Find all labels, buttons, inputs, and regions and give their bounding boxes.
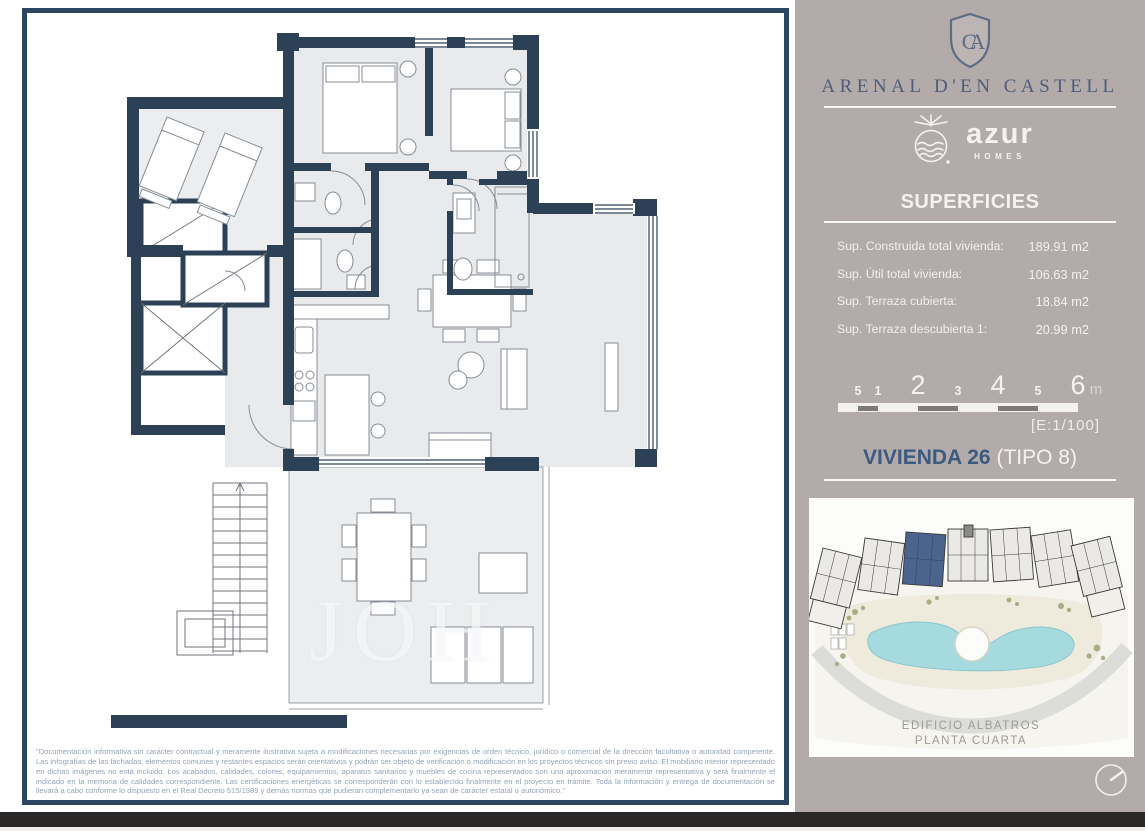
row-label: Sup. Terraza descubierta 1:: [837, 322, 987, 336]
scale-label: 4: [990, 370, 1005, 401]
azur-emblem-icon: [906, 112, 956, 168]
row-label: Sup. Terraza cubierta:: [837, 294, 957, 308]
divider: [824, 221, 1116, 223]
row-value: 20.99 m2: [1036, 322, 1089, 337]
compass-icon: [1091, 760, 1131, 805]
siteplan-caption-line1: EDIFICIO ALBATROS: [902, 720, 1040, 732]
floor-plan-panel: JOH "Documentación informativa sin carác…: [22, 8, 789, 805]
floor-plan-svg: [27, 13, 782, 751]
row-label: Sup. Construida total vivienda:: [837, 239, 1004, 253]
sidebar: CA ARENAL D'EN CASTELL azur HOMES: [795, 0, 1145, 812]
site-plan-panel: EDIFICIO ALBATROS PLANTA CUARTA: [809, 498, 1134, 757]
unit-type: (TIPO 8): [996, 446, 1077, 469]
row-value: 189.91 m2: [1029, 239, 1089, 254]
brand-sub: HOMES: [974, 153, 1026, 161]
brand-name: azur: [966, 120, 1034, 149]
brochure-page: JOH "Documentación informativa sin carác…: [0, 0, 1145, 831]
superficies-title: SUPERFICIES: [795, 191, 1145, 214]
scale-label: 1: [875, 384, 882, 398]
shield-logo-icon: CA: [947, 12, 993, 75]
legal-disclaimer: "Documentación informativa sin carácter …: [36, 747, 775, 796]
highlighted-unit: [902, 532, 946, 587]
scale-label: 5: [1035, 384, 1042, 398]
bottom-bar: [0, 812, 1145, 827]
superficies-row: Sup. Útil total vivienda: 106.63 m2: [837, 267, 1089, 295]
scale-label: 6: [1070, 370, 1085, 401]
divider: [824, 479, 1116, 481]
divider: [824, 106, 1116, 108]
row-value: 106.63 m2: [1029, 267, 1089, 282]
unit-title: VIVIENDA 26 (TIPO 8): [795, 446, 1145, 470]
row-value: 18.84 m2: [1036, 294, 1089, 309]
scale-unit: m: [1090, 381, 1103, 398]
scale-bar: 5 1 2 3 4 5 6 m [E:1/100]: [795, 370, 1145, 448]
exterior-stairs: [177, 483, 267, 655]
siteplan-caption-line2: PLANTA CUARTA: [915, 735, 1027, 747]
superficies-row: Sup. Terraza cubierta: 18.84 m2: [837, 294, 1089, 322]
scale-label: 3: [955, 384, 962, 398]
bottom-strip: [0, 827, 1145, 831]
azur-homes-logo: azur HOMES: [795, 112, 1145, 168]
scale-bar-rule: [838, 403, 1078, 412]
superficies-table: Sup. Construida total vivienda: 189.91 m…: [837, 239, 1089, 349]
unit-name: VIVIENDA 26: [863, 446, 991, 469]
project-title: ARENAL D'EN CASTELL: [795, 76, 1145, 98]
scale-note: [E:1/100]: [838, 417, 1100, 434]
site-plan-svg: EDIFICIO ALBATROS PLANTA CUARTA: [809, 498, 1134, 757]
superficies-row: Sup. Construida total vivienda: 189.91 m…: [837, 239, 1089, 267]
superficies-row: Sup. Terraza descubierta 1: 20.99 m2: [837, 322, 1089, 350]
row-label: Sup. Útil total vivienda:: [837, 267, 962, 281]
scale-label: 5: [855, 384, 862, 398]
scale-label: 2: [910, 370, 925, 401]
